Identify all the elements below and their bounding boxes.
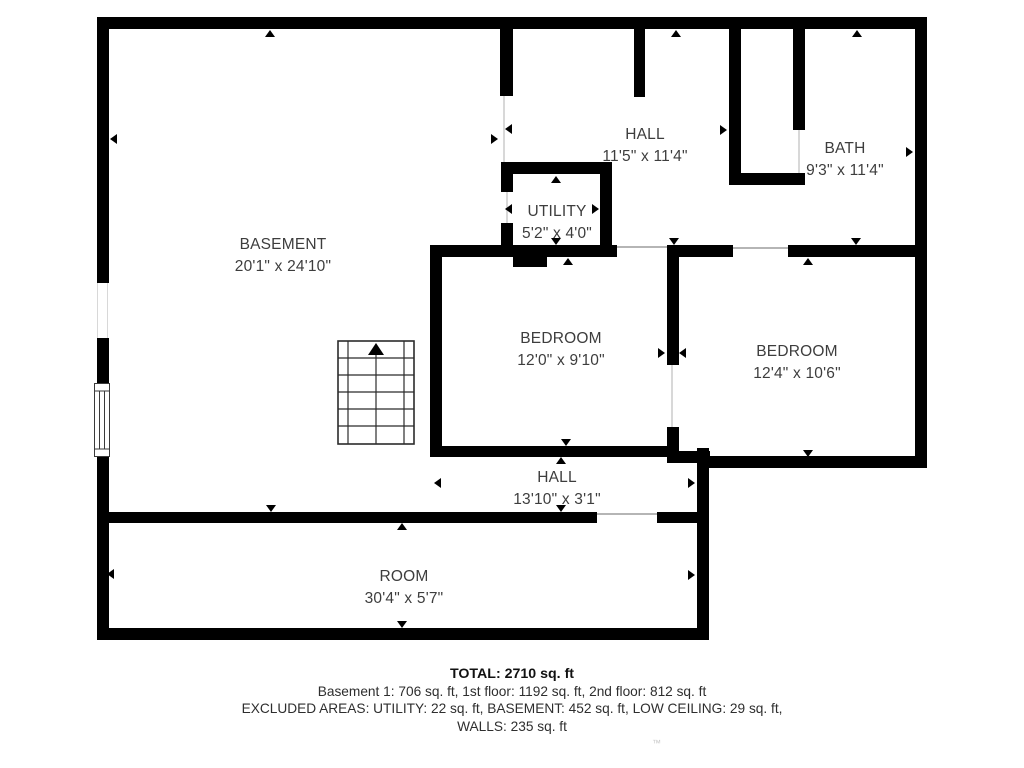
door-marker (266, 505, 276, 512)
door-marker (434, 348, 441, 358)
room-name: ROOM (304, 566, 504, 588)
door-marker (110, 134, 117, 144)
door-opening-line (671, 365, 673, 427)
room-label-hall-upper: HALL 11'5" x 11'4" (545, 124, 745, 168)
area-summary: TOTAL: 2710 sq. ft Basement 1: 706 sq. f… (0, 666, 1024, 735)
door-marker (551, 176, 561, 183)
door-marker (561, 439, 571, 446)
door-marker (397, 621, 407, 628)
wall (915, 17, 927, 468)
door-marker (852, 30, 862, 37)
door-marker (803, 450, 813, 457)
room-name: BEDROOM (461, 328, 661, 350)
door-marker (563, 258, 573, 265)
door-marker (688, 478, 695, 488)
summary-walls: WALLS: 235 sq. ft (0, 718, 1024, 735)
summary-floors: Basement 1: 706 sq. ft, 1st floor: 1192 … (0, 683, 1024, 700)
wall (97, 454, 109, 640)
room-name: BATH (745, 138, 945, 160)
wall (97, 628, 709, 640)
stairs-icon (337, 340, 415, 445)
room-dims: 9'3" x 11'4" (745, 160, 945, 182)
room-name: HALL (545, 124, 745, 146)
room-name: BEDROOM (697, 341, 897, 363)
door-marker (397, 523, 407, 530)
room-dims: 13'10" x 3'1" (457, 489, 657, 511)
door-marker (434, 478, 441, 488)
wall (697, 448, 709, 640)
summary-total: TOTAL: 2710 sq. ft (0, 666, 1024, 683)
room-label-room: ROOM 30'4" x 5'7" (304, 566, 504, 610)
floor-plan: BASEMENT 20'1" x 24'10" HALL 11'5" x 11'… (0, 0, 1024, 768)
wall (500, 17, 513, 96)
wall (788, 245, 927, 257)
door-marker (851, 238, 861, 245)
wall-opening-line (107, 283, 108, 338)
room-name: BASEMENT (163, 234, 403, 256)
wall (97, 338, 109, 386)
room-dims: 30'4" x 5'7" (304, 588, 504, 610)
wall (657, 512, 697, 523)
room-dims: 20'1" x 24'10" (163, 256, 403, 278)
door-marker (671, 30, 681, 37)
room-dims: 12'0" x 9'10" (461, 350, 661, 372)
door-opening-line (597, 513, 657, 515)
room-dims: 12'4" x 10'6" (697, 363, 897, 385)
summary-excluded: EXCLUDED AREAS: UTILITY: 22 sq. ft, BASE… (0, 700, 1024, 717)
wall (430, 446, 670, 457)
watermark: ™ (652, 738, 662, 748)
wall (667, 245, 679, 365)
wall (634, 17, 645, 97)
room-label-utility: UTILITY 5'2" x 4'0" (497, 201, 617, 245)
wall (793, 17, 805, 130)
door-marker (491, 134, 498, 144)
room-label-basement: BASEMENT 20'1" x 24'10" (163, 234, 403, 278)
room-label-bath: BATH 9'3" x 11'4" (745, 138, 945, 182)
door-marker (107, 569, 114, 579)
wall (97, 17, 109, 283)
room-label-bedroom-right: BEDROOM 12'4" x 10'6" (697, 341, 897, 385)
door-marker (265, 30, 275, 37)
door-marker (679, 348, 686, 358)
room-label-bedroom-left: BEDROOM 12'0" x 9'10" (461, 328, 661, 372)
door-marker (556, 457, 566, 464)
wall (103, 512, 597, 523)
door-opening-line (733, 247, 788, 249)
room-name: UTILITY (497, 201, 617, 223)
room-dims: 5'2" x 4'0" (497, 223, 617, 245)
door-marker (688, 570, 695, 580)
room-name: HALL (457, 467, 657, 489)
wall-opening-line (97, 283, 98, 338)
room-dims: 11'5" x 11'4" (545, 146, 745, 168)
wall (513, 257, 547, 267)
wall (703, 456, 927, 468)
door-marker (669, 238, 679, 245)
wall (430, 245, 617, 257)
room-label-hall-lower: HALL 13'10" x 3'1" (457, 467, 657, 511)
door-marker (505, 124, 512, 134)
door-opening-line (617, 246, 667, 248)
window-symbol (94, 383, 110, 457)
door-marker (803, 258, 813, 265)
